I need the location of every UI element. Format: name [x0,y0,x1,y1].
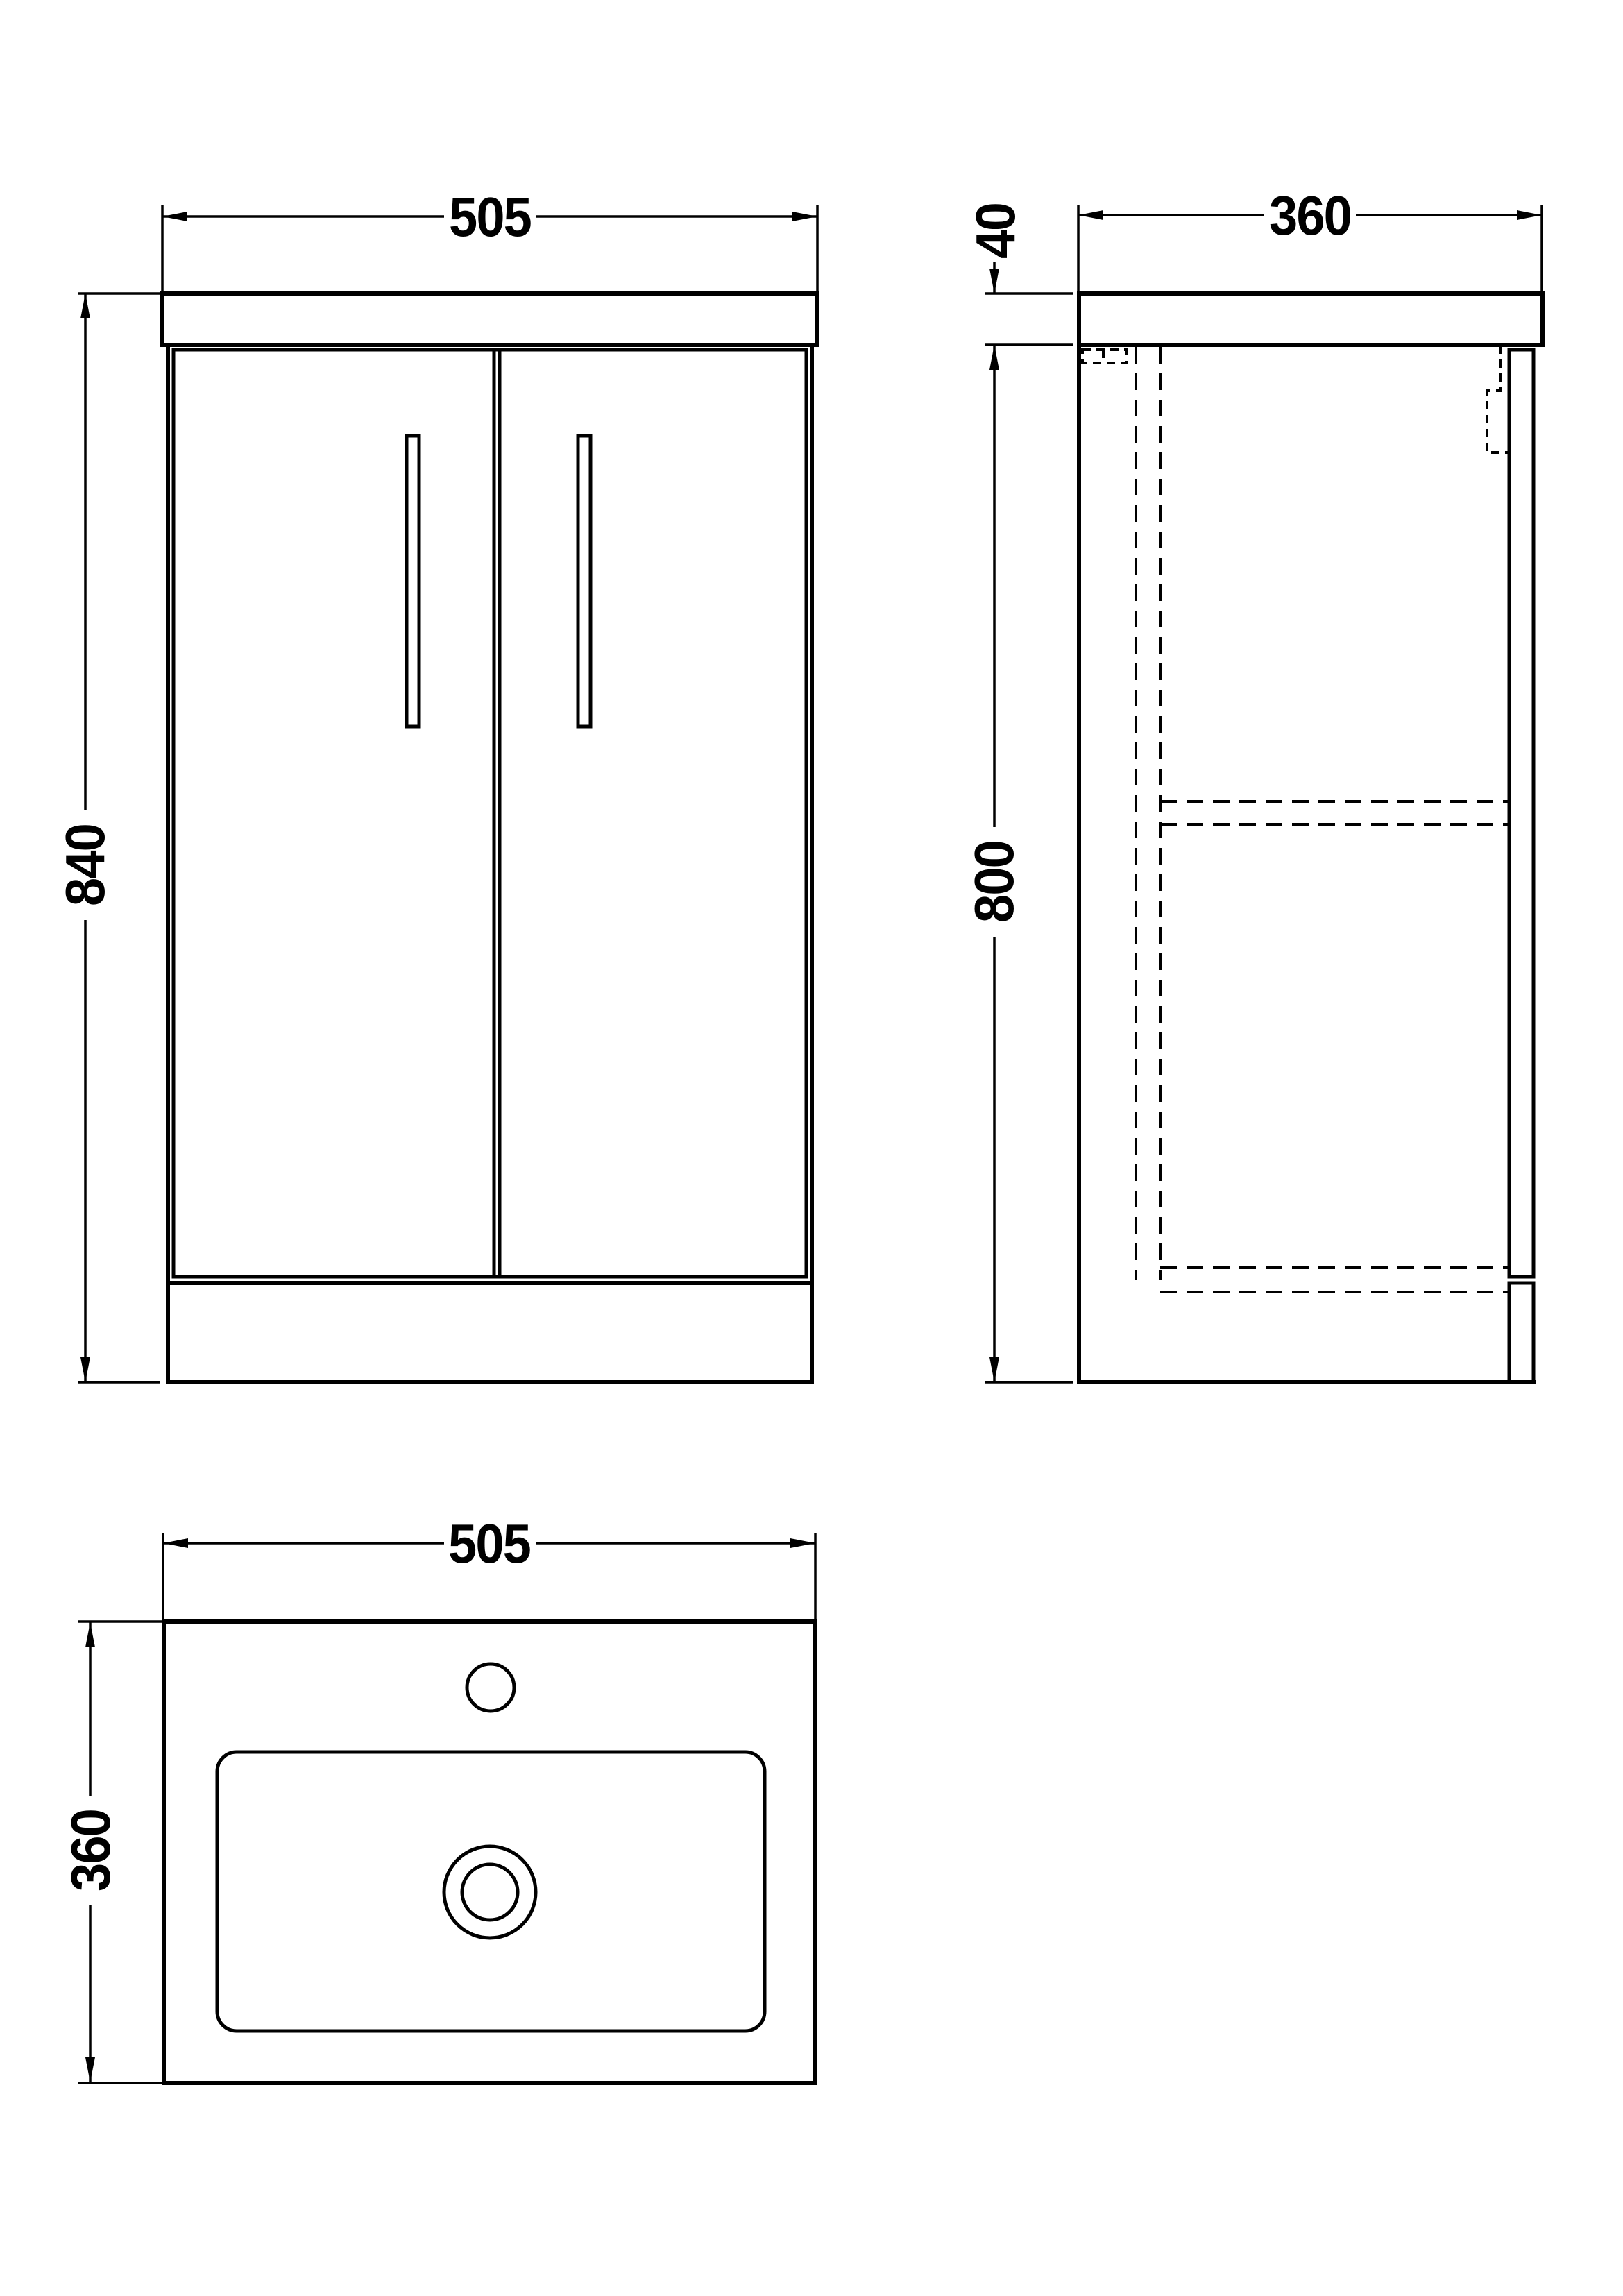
plan-width-dimension: 505 [163,1513,815,1622]
arrowhead-icon [989,269,999,294]
plinth-side-profile [1509,1283,1533,1382]
front-height-label: 840 [54,824,116,906]
arrowhead-icon [1078,210,1103,220]
plan-width-label: 505 [448,1513,530,1574]
basin-plan [164,1622,815,2083]
tap-hole [467,1664,514,1711]
worktop-side [1079,294,1543,345]
arrowhead-icon [85,2057,95,2082]
arrowhead-icon [162,212,187,221]
left-door-handle [407,436,419,726]
arrowhead-icon [80,294,90,318]
basin-outer-rim [164,1622,815,2083]
vanity-technical-drawing: 505 840 [0,0,1623,2296]
arrowhead-icon [80,1357,90,1382]
waste-outer-ring [444,1846,536,1938]
arrowhead-icon [1517,210,1542,220]
waste-inner-ring [462,1864,518,1920]
front-width-label: 505 [449,186,531,248]
front-view: 505 840 [54,186,817,1382]
worktop-thickness-label: 40 [965,203,1026,259]
hinge-hidden [1487,346,1509,452]
side-depth-label: 360 [1269,185,1351,246]
front-width-dimension: 505 [162,186,817,294]
arrowhead-icon [790,1538,815,1548]
basin-bowl [217,1752,765,2031]
side-height-dimension: 800 [963,345,1073,1382]
plan-depth-dimension: 360 [60,1622,164,2083]
worktop-thickness-dimension: 40 [965,203,1073,345]
arrowhead-icon [792,212,817,221]
right-door-handle [578,436,590,726]
arrowhead-icon [163,1538,188,1548]
front-height-dimension: 840 [54,294,162,1382]
arrowhead-icon [989,1357,999,1382]
side-depth-dimension: 360 [1078,185,1542,294]
side-view: 360 40 800 [963,185,1543,1382]
plan-view: 505 360 [60,1513,815,2083]
arrowhead-icon [989,345,999,370]
front-cabinet [162,294,817,1382]
drawing-sheet: 505 840 [0,0,1623,2296]
arrowhead-icon [85,1622,95,1647]
side-cabinet [1079,294,1543,1382]
worktop-front [162,294,817,345]
plan-depth-label: 360 [60,1810,121,1891]
side-height-label: 800 [963,841,1025,923]
door-side-profile [1509,350,1533,1277]
